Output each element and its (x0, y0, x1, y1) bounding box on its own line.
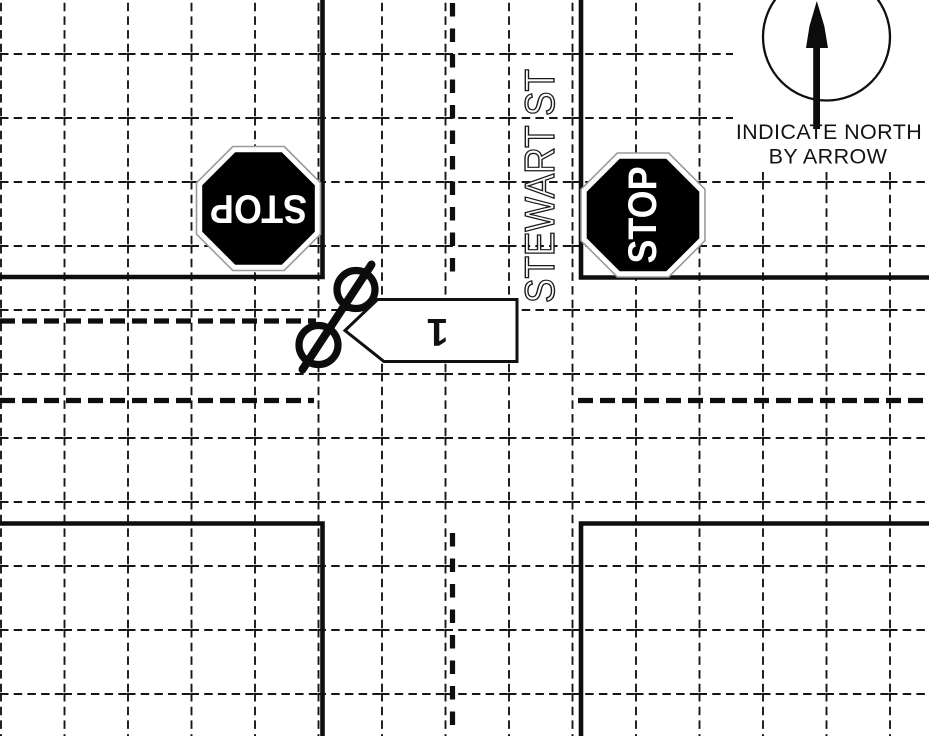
stop-sign-west-label: STOP (210, 187, 307, 231)
vehicle-unit-number: 1 (427, 310, 449, 353)
street-name-label[interactable]: STEWART ST (516, 69, 563, 303)
stop-sign-west[interactable]: STOP (197, 147, 321, 271)
north-instruction-line2: BY ARROW (769, 145, 888, 169)
collision-diagram-canvas: 1 STOP STOP STEWART ST INDICATE NORTH BY… (0, 0, 929, 736)
vehicle-unit-1[interactable]: 1 (345, 300, 517, 362)
stop-sign-east-label: STOP (621, 167, 665, 264)
north-indicator[interactable]: INDICATE NORTH BY ARROW (733, 0, 929, 172)
stop-sign-east[interactable]: STOP (581, 153, 705, 277)
north-instruction-line1: INDICATE NORTH (736, 120, 922, 144)
